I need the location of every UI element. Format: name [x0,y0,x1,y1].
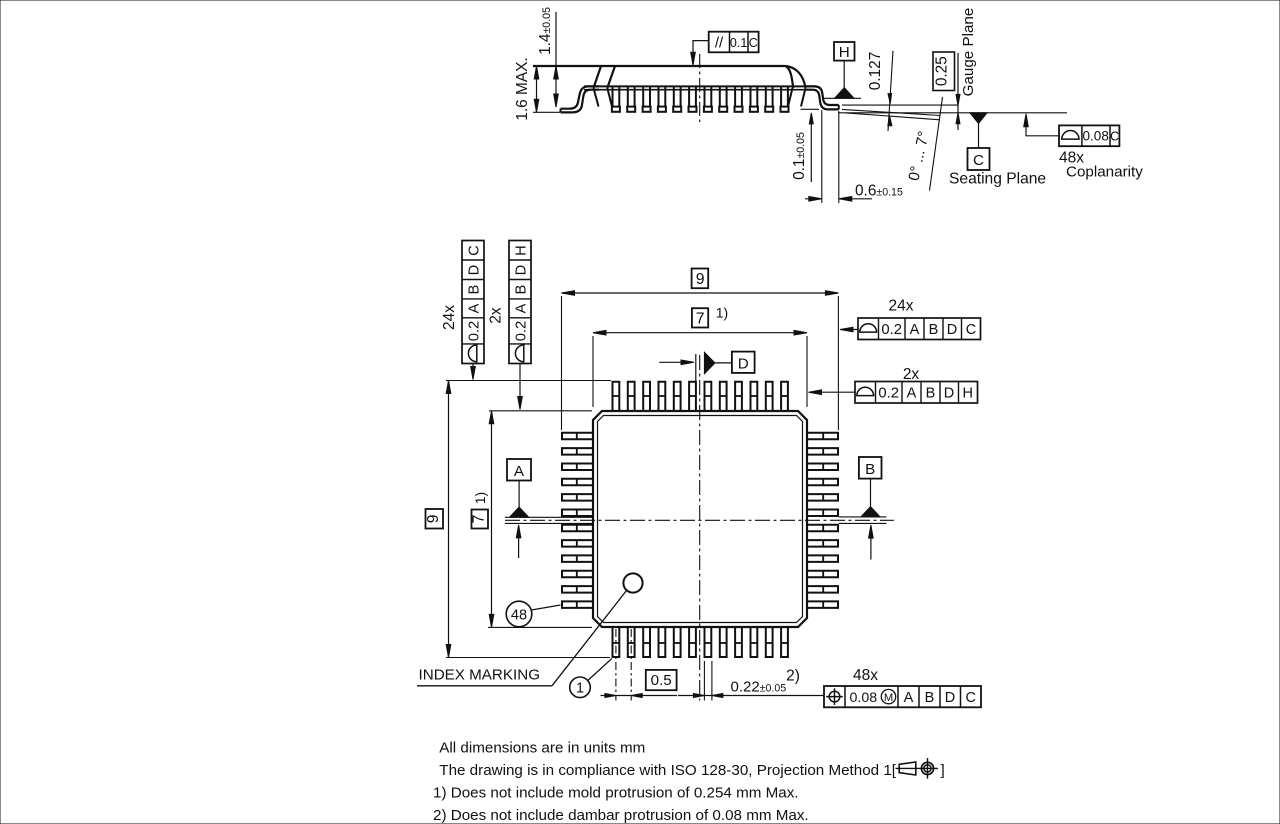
svg-text:2): 2) [786,668,800,685]
svg-text:9: 9 [425,514,442,523]
svg-text:H: H [839,44,850,61]
svg-text:C: C [965,690,975,706]
svg-text:A: A [467,303,483,313]
svg-text:A: A [514,303,530,313]
svg-text:24x: 24x [889,298,914,315]
svg-text:B: B [514,285,530,295]
svg-text:C: C [973,152,984,169]
svg-text:0.5: 0.5 [651,672,672,689]
svg-text:INDEX MARKING: INDEX MARKING [419,667,541,684]
svg-text:All dimensions are in units mm: All dimensions are in units mm [439,740,645,757]
svg-text:1.6 MAX.: 1.6 MAX. [514,57,531,120]
svg-text://: // [715,35,724,52]
svg-text:1): 1) [472,492,488,504]
svg-text:M: M [884,692,893,704]
svg-text:D: D [467,265,483,275]
svg-text:1: 1 [576,681,584,697]
svg-text:H: H [514,245,530,255]
svg-text:A: A [910,322,920,338]
svg-text:D: D [945,690,955,706]
svg-text:0.2: 0.2 [881,322,902,338]
svg-text:0.127: 0.127 [867,52,884,91]
svg-text:A: A [907,386,917,402]
svg-text:D: D [944,386,954,402]
svg-text:C: C [467,245,483,255]
svg-text:D: D [514,265,530,275]
svg-text:B: B [467,285,483,295]
svg-text:B: B [929,322,939,338]
svg-text:D: D [738,355,749,372]
svg-text:2x: 2x [488,307,505,324]
svg-text:7: 7 [471,515,488,524]
svg-text:Seating Plane: Seating Plane [949,171,1046,188]
svg-text:B: B [926,386,936,402]
svg-text:0.08: 0.08 [850,690,878,706]
svg-text:1) Does not include mold protr: 1) Does not include mold protrusion of 0… [433,785,799,802]
svg-text:7: 7 [696,311,705,328]
svg-text:0.2: 0.2 [514,321,530,342]
svg-text:2x: 2x [903,366,920,383]
svg-text:0.2: 0.2 [467,321,483,342]
svg-text:1): 1) [716,305,728,321]
svg-text:B: B [925,690,935,706]
svg-text:C: C [1110,130,1119,144]
svg-text:C: C [749,36,758,50]
svg-text:D: D [947,322,957,338]
svg-text:]: ] [941,762,945,779]
svg-text:C: C [966,322,976,338]
svg-text:Coplanarity: Coplanarity [1066,164,1143,181]
svg-text:0.2: 0.2 [878,386,899,402]
svg-text:0.1: 0.1 [730,36,747,50]
svg-text:0.08: 0.08 [1083,129,1109,144]
svg-text:Gauge Plane: Gauge Plane [960,8,977,97]
svg-text:A: A [904,690,914,706]
svg-text:48x: 48x [853,667,878,684]
svg-text:2) Does not include dambar pro: 2) Does not include dambar protrusion of… [433,807,809,824]
svg-text:H: H [962,386,972,402]
svg-text:48: 48 [511,608,527,624]
svg-text:0.25: 0.25 [934,56,951,86]
svg-text:The drawing is in compliance w: The drawing is in compliance with ISO 12… [439,762,896,779]
svg-text:B: B [865,461,875,478]
svg-text:A: A [514,463,525,480]
svg-text:9: 9 [696,271,705,288]
svg-text:24x: 24x [441,305,458,330]
